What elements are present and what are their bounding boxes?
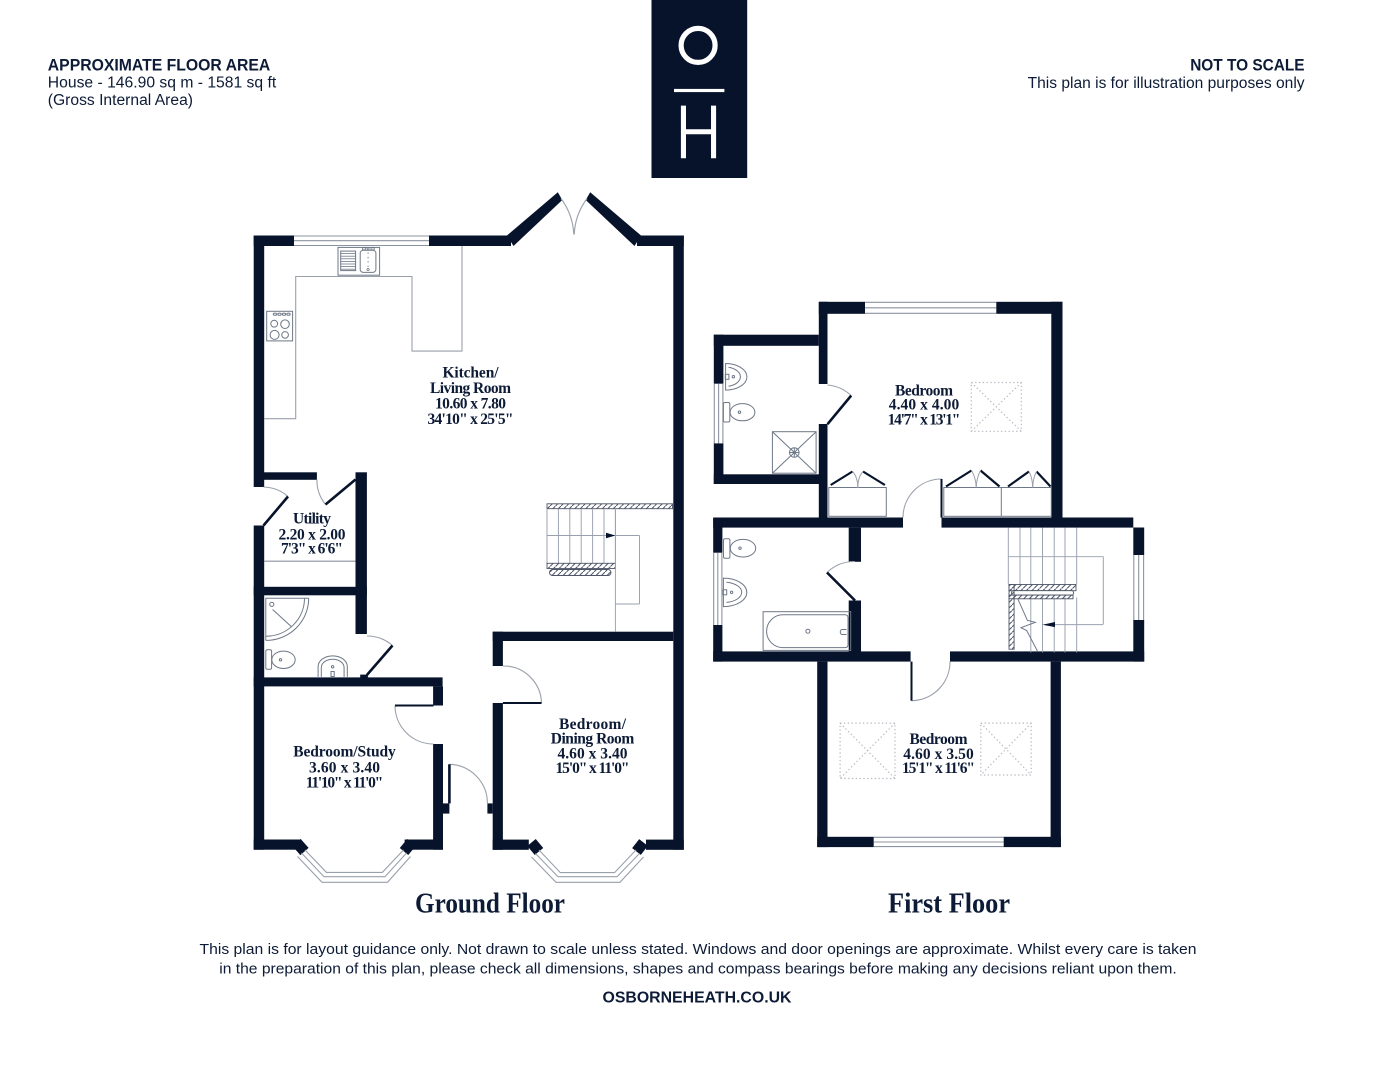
svg-text:Kitchen/: Kitchen/ (443, 365, 500, 382)
svg-text:14'7" x 13'1": 14'7" x 13'1" (888, 412, 961, 429)
svg-text:in the preparation of this pla: in the preparation of this plan, please … (219, 961, 1177, 978)
svg-text:15'1" x 11'6": 15'1" x 11'6" (902, 760, 975, 777)
svg-text:First Floor: First Floor (888, 889, 1010, 920)
svg-text:House - 146.90 sq m - 1581 sq: House - 146.90 sq m - 1581 sq ft (48, 75, 277, 92)
svg-text:Bedroom/Study: Bedroom/Study (293, 744, 396, 761)
svg-text:This plan is for layout guidan: This plan is for layout guidance only. N… (200, 941, 1197, 958)
svg-text:15'0" x 11'0": 15'0" x 11'0" (556, 760, 630, 777)
svg-text:NOT TO SCALE: NOT TO SCALE (1190, 57, 1304, 75)
svg-text:(Gross Internal Area): (Gross Internal Area) (48, 92, 193, 109)
svg-text:11'10" x 11'0": 11'10" x 11'0" (306, 775, 384, 792)
svg-text:10.60 x 7.80: 10.60 x 7.80 (435, 396, 506, 413)
svg-text:This plan is for illustration: This plan is for illustration purposes o… (1028, 75, 1305, 92)
svg-text:7'3" x 6'6": 7'3" x 6'6" (281, 541, 343, 558)
svg-text:OSBORNEHEATH.CO.UK: OSBORNEHEATH.CO.UK (603, 990, 793, 1007)
svg-text:APPROXIMATE FLOOR AREA: APPROXIMATE FLOOR AREA (48, 57, 271, 75)
svg-text:34'10" x 25'5": 34'10" x 25'5" (428, 411, 514, 428)
svg-text:Ground Floor: Ground Floor (415, 889, 565, 920)
svg-text:Utility: Utility (293, 511, 331, 528)
svg-text:Living Room: Living Room (430, 380, 511, 397)
